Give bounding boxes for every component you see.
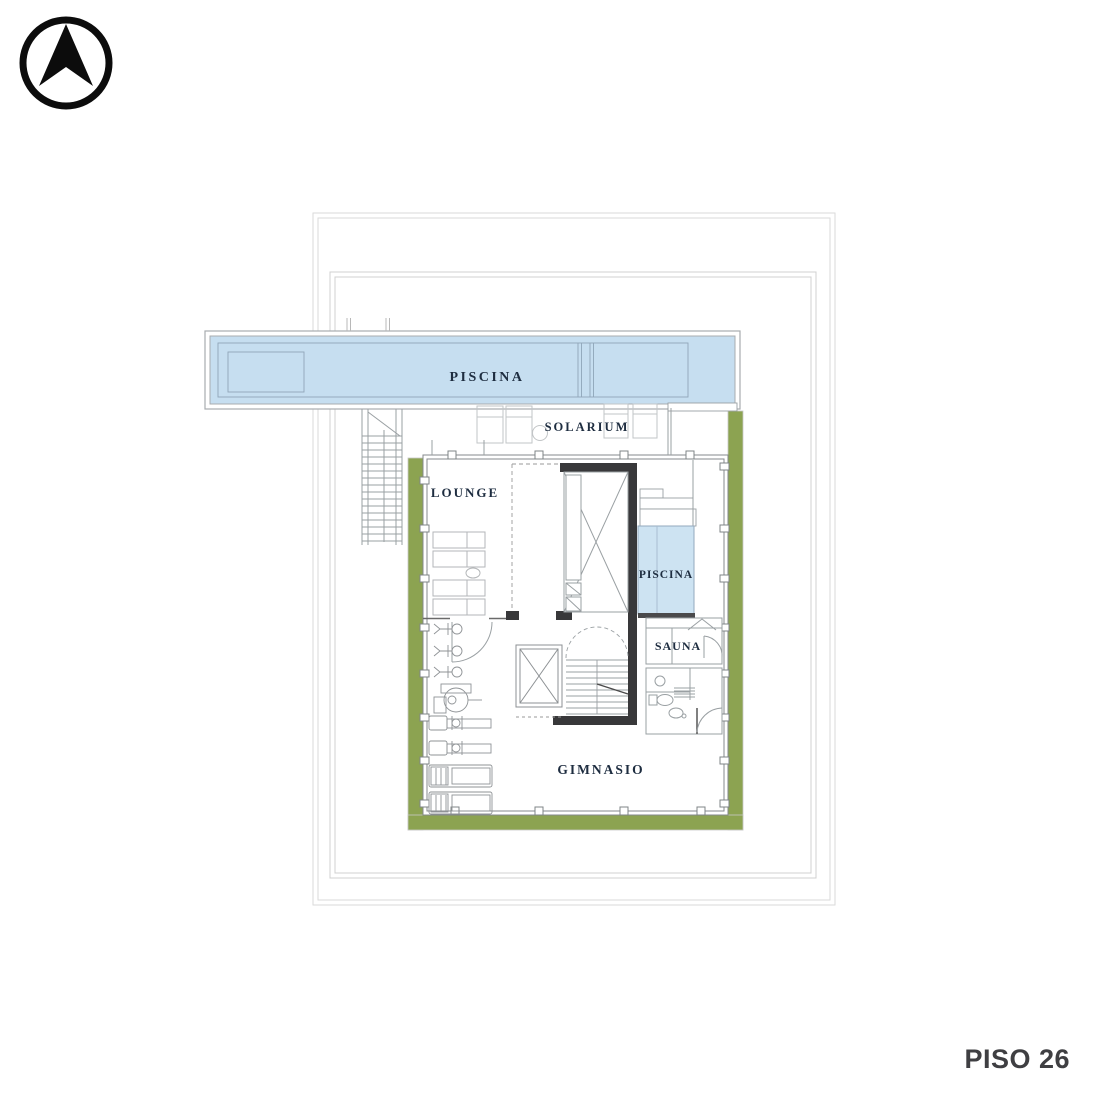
secondary-shaft [516,645,562,717]
gym-label: GIMNASIO [557,762,644,777]
floor-plan-page: PISCINA SOLARIUM LOUNG [0,0,1100,1100]
elevator-shaft [564,472,628,612]
floor-label: PISO 26 [964,1044,1070,1075]
pool-ledge [668,403,737,411]
bathroom [646,668,722,734]
indoor-pool-label: PISCINA [639,569,693,581]
solarium: SOLARIUM [432,404,671,455]
planter-right [728,411,743,830]
planter-bottom [408,815,743,830]
sauna: SAUNA [646,618,722,664]
planter-left [408,458,423,830]
solarium-label: SOLARIUM [545,420,630,434]
floor-plan-drawing: PISCINA SOLARIUM LOUNG [0,0,1100,1100]
north-arrow-icon [23,20,109,106]
rooftop-pool-label: PISCINA [449,370,524,385]
pool-sauna-wall [638,613,695,618]
sauna-label: SAUNA [655,639,701,653]
lounge-label: LOUNGE [431,485,499,500]
rooftop-pool: PISCINA [205,331,740,411]
